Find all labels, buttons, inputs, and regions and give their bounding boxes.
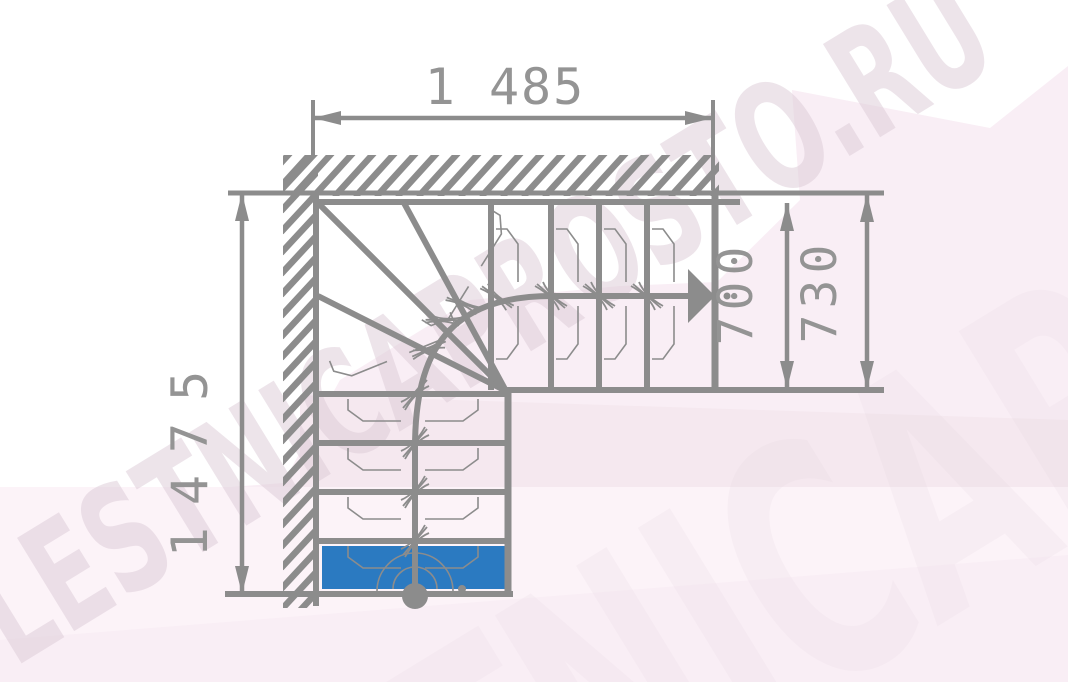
dimension-outer-right-label: 730 [792, 239, 848, 344]
dimension-inner-right-label: 700 [708, 241, 764, 346]
walk-line-start-circle [402, 583, 428, 609]
stair-plan-svg: LESTNICAPROSTO.RU LESTNICAPROSTO.RU [0, 0, 1068, 682]
stair-plan-drawing: LESTNICAPROSTO.RU LESTNICAPROSTO.RU [0, 0, 1068, 682]
detail-dot [458, 585, 466, 593]
dimension-left-label: 1475 [161, 349, 219, 557]
dimension-top-label: 1 485 [425, 58, 586, 116]
